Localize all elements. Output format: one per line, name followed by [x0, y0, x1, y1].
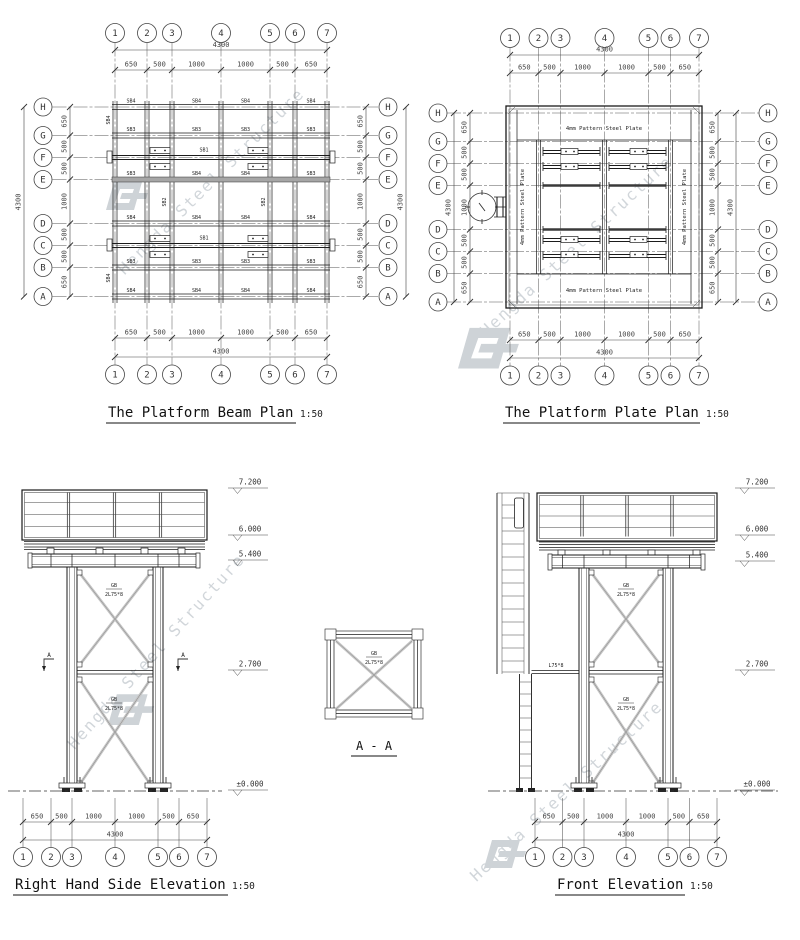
dim-label: 500: [543, 331, 556, 339]
beam-label: SB4: [126, 288, 135, 294]
dim-label: 500: [162, 813, 175, 821]
dim-label: 650: [357, 276, 365, 289]
dim-label: 1000: [709, 199, 717, 216]
axis-bubble-label: H: [435, 109, 440, 119]
dim-label: 500: [61, 228, 69, 241]
dim-label: 650: [461, 121, 469, 134]
drawing-sheet: Hengda Steel Structure Hengda Steel Stru…: [0, 0, 800, 935]
dim-label: 1000: [237, 61, 254, 69]
dim-label: 4300: [213, 348, 230, 356]
dim-label: 500: [357, 250, 365, 263]
dim-label: 4300: [618, 831, 635, 839]
dim-label: 500: [153, 61, 166, 69]
beam-label: SB4: [306, 99, 315, 105]
dim-label: 500: [709, 146, 717, 159]
axis-bubble-label: 7: [324, 29, 329, 39]
axis-bubble-label: 5: [665, 853, 670, 863]
axis-bubble-label: 2: [48, 853, 53, 863]
brace-label: 2L75*8: [105, 592, 123, 598]
dim-label: 500: [709, 256, 717, 269]
dim-label: 1000: [357, 193, 365, 210]
axis-bubble-label: G: [385, 132, 390, 142]
axis-bubble-label: F: [435, 160, 440, 170]
dim-label: 500: [461, 146, 469, 159]
level-label: 2.700: [746, 660, 769, 669]
dim-label: 1000: [574, 64, 591, 72]
side-elevation-dims: 650 500 1000 1000 500 650 4300 1 2 3 4 5…: [14, 798, 217, 867]
axis-bubble-label: H: [40, 103, 45, 113]
dim-label: 4300: [445, 199, 453, 216]
dim-label: 4300: [596, 46, 613, 54]
view-scale: 1:50: [690, 881, 713, 892]
axis-bubble-label: B: [765, 270, 770, 280]
axis-bubble-label: D: [765, 226, 770, 236]
dim-label: 650: [518, 64, 531, 72]
dim-label: 650: [305, 329, 318, 337]
dim-label: 650: [678, 331, 691, 339]
angle-label: L75*8: [548, 663, 563, 669]
front-elevation-levels: 7.200 6.000 5.400 2.700 ±0.000: [735, 478, 775, 796]
section-a-a: GB 2L75*8 A - A: [325, 629, 423, 756]
plate-plan-structure: [465, 106, 702, 308]
axis-bubble-label: 1: [507, 372, 512, 382]
dim-label: 1000: [597, 813, 614, 821]
dim-label: 650: [187, 813, 200, 821]
axis-bubble-label: 1: [507, 34, 512, 44]
brace-label: GB: [371, 651, 377, 657]
beam-label: SB3: [241, 127, 250, 133]
dim-label: 650: [709, 281, 717, 294]
beam-plan-axis-bubbles: 1 2 3 4 5 6 7 1 2 3 4 5 6 7 H G F E D C …: [34, 24, 397, 385]
brace-label: GB: [111, 583, 117, 589]
dim-label: 500: [653, 64, 666, 72]
axis-bubble-label: 3: [169, 371, 174, 381]
plate-note: 4mm Pattern Steel Plate: [520, 169, 526, 245]
axis-bubble-label: B: [385, 264, 390, 274]
brace-label: GB: [623, 583, 629, 589]
dim-label: 500: [357, 228, 365, 241]
dim-label: 500: [653, 331, 666, 339]
side-elevation-title: Right Hand Side Elevation 1:50: [13, 877, 255, 895]
level-label: 7.200: [746, 478, 769, 487]
dim-label: 1000: [639, 813, 656, 821]
axis-bubble-label: 2: [144, 29, 149, 39]
axis-bubble-label: A: [385, 293, 391, 303]
front-elevation-platform: [548, 554, 705, 570]
beam-label: SB4: [126, 99, 135, 105]
axis-bubble-label: 4: [112, 853, 117, 863]
beam-label: SB4: [306, 215, 315, 221]
axis-bubble-label: C: [40, 242, 45, 252]
plate-note: 4mm Pattern Steel Plate: [566, 288, 642, 294]
dim-label: 4300: [397, 194, 405, 211]
drawing-canvas: Hengda Steel Structure Hengda Steel Stru…: [0, 0, 800, 935]
level-label: 7.200: [239, 478, 262, 487]
front-elevation-billboard: [537, 493, 717, 555]
axis-bubble-label: 5: [155, 853, 160, 863]
dim-label: 500: [461, 234, 469, 247]
beam-label: SB4: [126, 215, 135, 221]
plate-note: 4mm Pattern Steel Plate: [682, 169, 688, 245]
axis-bubble-label: 1: [20, 853, 25, 863]
plate-note: 4mm Pattern Steel Plate: [566, 126, 642, 132]
axis-bubble-label: E: [40, 176, 45, 186]
beam-label: SB3: [126, 259, 135, 265]
dim-label: 650: [678, 64, 691, 72]
view-title: The Platform Beam Plan: [108, 405, 293, 421]
axis-bubble-label: G: [40, 132, 45, 142]
axis-bubble-label: 4: [218, 29, 223, 39]
beam-label: SB3: [126, 171, 135, 177]
axis-bubble-label: 7: [696, 34, 701, 44]
axis-bubble-label: 7: [714, 853, 719, 863]
dim-label: 650: [697, 813, 710, 821]
view-scale: 1:50: [232, 881, 255, 892]
view-title: A - A: [356, 739, 393, 753]
beam-label: SB4: [241, 288, 250, 294]
view-title: The Platform Plate Plan: [505, 405, 699, 421]
dim-label: 4300: [107, 831, 124, 839]
dim-label: 1000: [618, 331, 635, 339]
axis-bubble-label: 4: [218, 371, 223, 381]
axis-bubble-label: E: [435, 182, 440, 192]
axis-bubble-label: 1: [532, 853, 537, 863]
beam-label: SB4: [241, 215, 250, 221]
brace-label: 2L75*8: [617, 706, 635, 712]
axis-bubble-label: A: [40, 293, 46, 303]
dim-label: 500: [567, 813, 580, 821]
axis-bubble-label: E: [385, 176, 390, 186]
dim-label: 650: [61, 115, 69, 128]
dim-label: 650: [357, 115, 365, 128]
view-title: Front Elevation: [557, 877, 683, 893]
section-marker-label: A: [47, 652, 51, 659]
beam-label: SB4: [192, 288, 201, 294]
axis-bubble-label: H: [765, 109, 770, 119]
axis-bubble-label: A: [435, 298, 441, 308]
brace-label: 2L75*8: [365, 660, 383, 666]
axis-bubble-label: D: [385, 220, 390, 230]
beam-label: SB3: [192, 127, 201, 133]
axis-bubble-label: D: [435, 226, 440, 236]
dim-label: 500: [276, 329, 289, 337]
beam-label: SB3: [241, 259, 250, 265]
dim-label: 500: [153, 329, 166, 337]
axis-bubble-label: B: [435, 270, 440, 280]
axis-bubble-label: C: [385, 242, 390, 252]
axis-bubble-label: 3: [169, 29, 174, 39]
axis-bubble-label: 4: [623, 853, 628, 863]
axis-bubble-label: F: [385, 154, 390, 164]
dim-label: 650: [518, 331, 531, 339]
beam-label: SB2: [162, 197, 168, 206]
axis-bubble-label: 6: [668, 34, 673, 44]
beam-label: SB3: [306, 171, 315, 177]
dim-label: 650: [709, 121, 717, 134]
level-label: ±0.000: [236, 780, 264, 789]
dim-label: 1000: [61, 193, 69, 210]
dim-label: 650: [125, 329, 138, 337]
side-elevation-base: [8, 777, 222, 792]
level-label: ±0.000: [743, 780, 771, 789]
dim-label: 500: [61, 140, 69, 153]
view-scale: 1:50: [706, 409, 729, 420]
beam-label: SB2: [261, 197, 267, 206]
axis-bubble-label: 3: [558, 34, 563, 44]
dim-label: 1000: [618, 64, 635, 72]
beam-label: SB4: [192, 215, 201, 221]
section-cut-markers: A A: [42, 652, 188, 671]
dim-label: 1000: [237, 329, 254, 337]
plate-plan-title: The Platform Plate Plan 1:50: [503, 405, 729, 423]
side-elevation-billboard: [22, 490, 207, 554]
beam-plan-title: The Platform Beam Plan 1:50: [106, 405, 323, 423]
side-elevation-levels: 7.200 6.000 5.400 2.700 ±0.000: [228, 478, 268, 796]
beam-label: SB4: [306, 288, 315, 294]
axis-bubble-label: G: [765, 138, 770, 148]
dim-label: 650: [542, 813, 555, 821]
dim-label: 650: [61, 276, 69, 289]
side-elevation-platform: [28, 553, 200, 568]
dim-label: 500: [357, 162, 365, 175]
dim-label: 1000: [188, 61, 205, 69]
dim-label: 4300: [596, 349, 613, 357]
beam-label: SB1: [199, 148, 208, 154]
axis-bubble-label: 6: [687, 853, 692, 863]
axis-bubble-label: 2: [560, 853, 565, 863]
side-elevation: GB 2L75*8 GB 2L75*8 A A 7.200 6.000 5.40…: [8, 478, 268, 896]
axis-bubble-label: 1: [112, 371, 117, 381]
beam-label: SB4: [106, 273, 112, 282]
axis-bubble-label: C: [435, 248, 440, 258]
dim-label: 4300: [15, 194, 23, 211]
axis-bubble-label: 4: [602, 372, 607, 382]
brace-label: GB: [111, 697, 117, 703]
axis-bubble-label: 5: [646, 372, 651, 382]
brace-label: 2L75*8: [617, 592, 635, 598]
axis-bubble-label: 2: [144, 371, 149, 381]
axis-bubble-label: 5: [267, 371, 272, 381]
dim-label: 500: [709, 168, 717, 181]
axis-bubble-label: B: [40, 264, 45, 274]
front-elevation-title: Front Elevation 1:50: [555, 877, 713, 895]
axis-bubble-label: 6: [668, 372, 673, 382]
dim-label: 650: [461, 281, 469, 294]
section-title: A - A: [351, 739, 397, 756]
dim-label: 500: [461, 256, 469, 269]
beam-plan: 4300 650 500 1000 1000 500 650 650 500 1…: [15, 24, 410, 424]
axis-bubble-label: 1: [112, 29, 117, 39]
dim-label: 500: [357, 140, 365, 153]
beam-label: SB3: [192, 259, 201, 265]
dim-label: 1000: [574, 331, 591, 339]
axis-bubble-label: F: [765, 160, 770, 170]
beam-label: SB4: [192, 99, 201, 105]
axis-bubble-label: 5: [267, 29, 272, 39]
level-label: 6.000: [746, 525, 769, 534]
axis-bubble-label: 7: [204, 853, 209, 863]
axis-bubble-label: G: [435, 138, 440, 148]
plate-plan-right-dims: 650 500 500 1000 500 500 650 4300: [709, 110, 740, 305]
dim-label: 1000: [461, 199, 469, 216]
axis-bubble-label: 7: [696, 372, 701, 382]
dim-label: 650: [125, 61, 138, 69]
dim-label: 650: [31, 813, 44, 821]
dim-label: 1000: [188, 329, 205, 337]
front-elevation-ladder: L75*8: [497, 493, 579, 792]
beam-label: SB1: [199, 236, 208, 242]
level-label: 5.400: [746, 551, 769, 560]
axis-bubble-label: D: [40, 220, 45, 230]
beam-label: SB4: [241, 171, 250, 177]
beam-label: SB4: [241, 99, 250, 105]
axis-bubble-label: 4: [602, 34, 607, 44]
beam-label: SB3: [306, 127, 315, 133]
beam-label: SB4: [192, 171, 201, 177]
level-label: 2.700: [239, 660, 262, 669]
axis-bubble-label: 6: [292, 371, 297, 381]
axis-bubble-label: F: [40, 154, 45, 164]
beam-plan-right-dims: 650 500 500 1000 500 500 650 4300: [357, 104, 410, 300]
dim-label: 500: [55, 813, 68, 821]
dim-label: 500: [461, 168, 469, 181]
dim-label: 500: [709, 234, 717, 247]
beam-label: SB3: [126, 127, 135, 133]
dim-label: 500: [543, 64, 556, 72]
level-label: 5.400: [239, 550, 262, 559]
dim-label: 500: [61, 250, 69, 263]
watermark-layer: Hengda Steel Structure Hengda Steel Stru…: [63, 84, 676, 885]
axis-bubble-label: 2: [536, 34, 541, 44]
beam-label: SB4: [106, 115, 112, 124]
beam-label: SB3: [306, 259, 315, 265]
axis-bubble-label: C: [765, 248, 770, 258]
dim-label: 500: [61, 162, 69, 175]
axis-bubble-label: 6: [176, 853, 181, 863]
axis-bubble-label: 3: [581, 853, 586, 863]
axis-bubble-label: A: [765, 298, 771, 308]
axis-bubble-label: 7: [324, 371, 329, 381]
axis-bubble-label: H: [385, 103, 390, 113]
brace-label: 2L75*8: [105, 706, 123, 712]
dim-label: 500: [276, 61, 289, 69]
axis-bubble-label: 6: [292, 29, 297, 39]
axis-bubble-label: 3: [69, 853, 74, 863]
view-title: Right Hand Side Elevation: [15, 877, 226, 893]
dim-label: 500: [672, 813, 685, 821]
level-label: 6.000: [239, 525, 262, 534]
view-scale: 1:50: [300, 409, 323, 420]
axis-bubble-label: 2: [536, 372, 541, 382]
axis-bubble-label: E: [765, 182, 770, 192]
dim-label: 650: [305, 61, 318, 69]
dim-label: 1000: [85, 813, 102, 821]
axis-bubble-label: 3: [558, 372, 563, 382]
axis-bubble-label: 5: [646, 34, 651, 44]
brace-label: GB: [623, 697, 629, 703]
plate-plan-left-dims: 4300 650 500 500 1000 500 500 650: [445, 110, 474, 305]
dim-label: 4300: [727, 199, 735, 216]
section-marker-label: A: [181, 652, 185, 659]
company-logo: [106, 182, 148, 210]
dim-label: 1000: [128, 813, 145, 821]
